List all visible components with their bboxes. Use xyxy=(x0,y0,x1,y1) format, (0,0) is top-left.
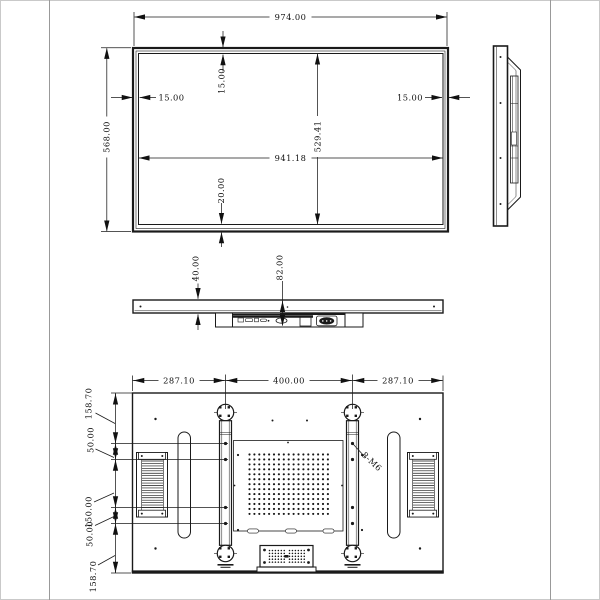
dim-active-height: 529.41 xyxy=(312,121,322,153)
side-rail-profile xyxy=(511,76,519,183)
rear-view: 8-M6 287.10 400.00 287.10 xyxy=(83,375,443,593)
dim-gap-lower: 50.00 xyxy=(84,521,94,547)
dim-span-right: 287.10 xyxy=(382,376,414,386)
side-view xyxy=(494,46,521,226)
dim-margin-top: 158.70 xyxy=(84,388,94,420)
dim-active-width: 941.18 xyxy=(275,153,307,163)
dim-margin-bottom: 158.70 xyxy=(88,561,98,593)
dim-thickness: 40.00 xyxy=(190,255,200,281)
dim-gap-upper: 50.00 xyxy=(85,427,95,453)
dim-bezel-bottom: 20.00 xyxy=(216,177,226,203)
technical-drawing: 974.00 568.00 941.18 529.41 15.00 15.00 … xyxy=(0,0,600,600)
drawing-sheet: 974.00 568.00 941.18 529.41 15.00 15.00 … xyxy=(0,0,600,600)
bottom-view: 40.00 82.00 xyxy=(133,254,443,330)
dim-overall-height: 568.00 xyxy=(102,121,112,153)
dim-bezel-left: 15.00 xyxy=(159,93,185,103)
dim-overall-width: 974.00 xyxy=(275,12,307,22)
dim-total-depth: 82.00 xyxy=(274,254,284,280)
front-outer-frame xyxy=(133,48,448,232)
dim-bezel-right: 15.00 xyxy=(397,93,423,103)
dim-vesa-width: 400.00 xyxy=(273,376,305,386)
front-view: 974.00 568.00 941.18 529.41 15.00 15.00 … xyxy=(101,12,470,247)
dim-bezel-top: 15.00 xyxy=(217,68,227,94)
side-panel-face xyxy=(494,46,508,226)
rear-io-panel xyxy=(257,546,316,573)
dim-span-left: 287.10 xyxy=(163,376,195,386)
